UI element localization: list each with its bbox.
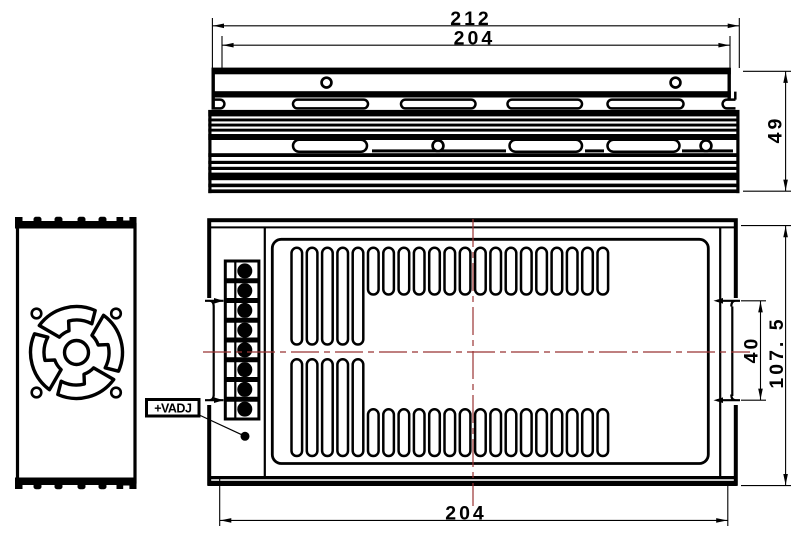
svg-text:107. 5: 107. 5 bbox=[766, 316, 788, 388]
svg-text:204: 204 bbox=[454, 28, 496, 50]
svg-text:40: 40 bbox=[741, 336, 763, 364]
svg-text:204: 204 bbox=[445, 502, 487, 524]
svg-text:49: 49 bbox=[765, 116, 787, 144]
svg-text:+VADJ: +VADJ bbox=[154, 402, 192, 416]
